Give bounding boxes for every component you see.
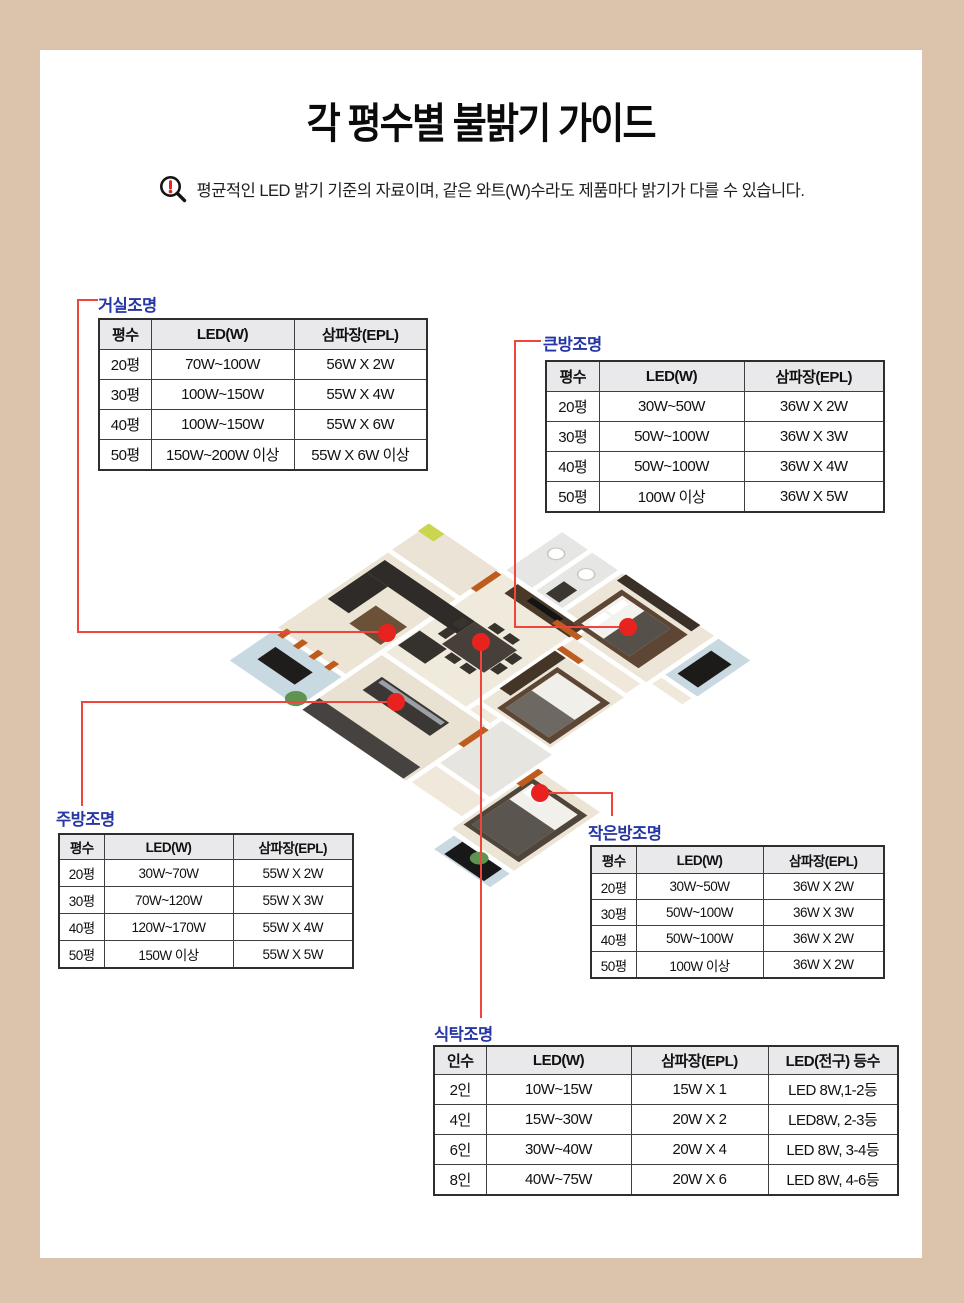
table-cell: 70W~120W (104, 887, 233, 914)
big-room-callout-line (514, 626, 628, 628)
label-kitchen-lighting: 주방조명 (56, 806, 115, 830)
table-row: 40평100W~150W55W X 6W (99, 410, 427, 440)
kitchen-callout-line (81, 701, 83, 806)
table-cell: LED 8W, 3-4등 (768, 1135, 898, 1165)
table-cell: 40평 (59, 914, 104, 941)
column-header: 삼파장(EPL) (763, 846, 884, 874)
small-room-callout-line (611, 792, 613, 816)
table-row: 40평50W~100W36W X 2W (591, 926, 884, 952)
column-header: LED(W) (486, 1046, 631, 1075)
kitchen-table: 평수LED(W)삼파장(EPL)20평30W~70W55W X 2W30평70W… (58, 833, 354, 969)
table-cell: 30W~50W (636, 874, 763, 900)
table-cell: 8인 (434, 1165, 486, 1196)
table-cell: 20평 (591, 874, 636, 900)
small-room-callout-line (540, 792, 613, 794)
header-row: 평수LED(W)삼파장(EPL) (546, 361, 884, 392)
table-cell: 50W~100W (636, 926, 763, 952)
header-row: 인수LED(W)삼파장(EPL)LED(전구) 등수 (434, 1046, 898, 1075)
table-row: 6인30W~40W20W X 4LED 8W, 3-4등 (434, 1135, 898, 1165)
table-cell: 4인 (434, 1105, 486, 1135)
table-cell: 100W~150W (151, 410, 294, 440)
table-cell: 50평 (591, 952, 636, 979)
table-cell: 50평 (59, 941, 104, 969)
table-row: 20평30W~70W55W X 2W (59, 860, 353, 887)
page-title: 각 평수별 불밝기 가이드 (307, 90, 655, 151)
column-header: 삼파장(EPL) (233, 834, 353, 860)
table-row: 8인40W~75W20W X 6LED 8W, 4-6등 (434, 1165, 898, 1196)
dining-callout-line (480, 642, 482, 1018)
table-cell: 40평 (546, 452, 599, 482)
table-row: 30평50W~100W36W X 3W (546, 422, 884, 452)
table-cell: 150W 이상 (104, 941, 233, 969)
table-cell: 100W 이상 (599, 482, 744, 513)
table-cell: 20W X 2 (631, 1105, 768, 1135)
label-dining-lighting: 식탁조명 (434, 1021, 493, 1045)
label-big-room-lighting: 큰방조명 (543, 331, 602, 355)
table-cell: 55W X 4W (233, 914, 353, 941)
table-cell: 30평 (591, 900, 636, 926)
small-room-marker (531, 784, 549, 802)
table-cell: 70W~100W (151, 350, 294, 380)
table-cell: 2인 (434, 1075, 486, 1105)
table-cell: 36W X 5W (744, 482, 884, 513)
table-cell: LED 8W,1-2등 (768, 1075, 898, 1105)
big-room-marker (619, 618, 637, 636)
table-cell: 20평 (59, 860, 104, 887)
column-header: 평수 (591, 846, 636, 874)
big-room-callout-line (514, 340, 516, 628)
table-row: 30평100W~150W55W X 4W (99, 380, 427, 410)
column-header: LED(W) (599, 361, 744, 392)
table-cell: 36W X 4W (744, 452, 884, 482)
kitchen-callout-line (81, 701, 396, 703)
label-living-room-lighting: 거실조명 (98, 292, 157, 316)
column-header: 평수 (59, 834, 104, 860)
table-cell: 30W~40W (486, 1135, 631, 1165)
table-cell: 55W X 6W 이상 (294, 440, 427, 471)
living-room-marker (378, 624, 396, 642)
table-cell: 55W X 2W (233, 860, 353, 887)
table-cell: 20W X 4 (631, 1135, 768, 1165)
table-cell: 100W~150W (151, 380, 294, 410)
small-room-table: 평수LED(W)삼파장(EPL)20평30W~50W36W X 2W30평50W… (590, 845, 885, 979)
table-cell: 40W~75W (486, 1165, 631, 1196)
poster-page: 각 평수별 불밝기 가이드 평균적인 LED 밝기 기준의 자료이며, 같은 와… (0, 0, 964, 1303)
table-cell: 20평 (546, 392, 599, 422)
table-cell: 36W X 2W (744, 392, 884, 422)
column-header: 평수 (99, 319, 151, 350)
table-cell: LED8W, 2-3등 (768, 1105, 898, 1135)
table-cell: 6인 (434, 1135, 486, 1165)
table-cell: 50평 (99, 440, 151, 471)
living-callout-line (77, 631, 387, 633)
living-callout-line (77, 299, 98, 301)
table-row: 50평150W 이상55W X 5W (59, 941, 353, 969)
notice-row: 평균적인 LED 밝기 기준의 자료이며, 같은 와트(W)수라도 제품마다 밝… (40, 174, 922, 204)
column-header: 삼파장(EPL) (631, 1046, 768, 1075)
table-row: 40평50W~100W36W X 4W (546, 452, 884, 482)
table-cell: 120W~170W (104, 914, 233, 941)
table-row: 2인10W~15W15W X 1LED 8W,1-2등 (434, 1075, 898, 1105)
dining-table-table: 인수LED(W)삼파장(EPL)LED(전구) 등수2인10W~15W15W X… (433, 1045, 899, 1196)
table-cell: 56W X 2W (294, 350, 427, 380)
notice-text: 평균적인 LED 밝기 기준의 자료이며, 같은 와트(W)수라도 제품마다 밝… (197, 177, 805, 201)
table-cell: 40평 (591, 926, 636, 952)
column-header: LED(W) (151, 319, 294, 350)
column-header: LED(W) (636, 846, 763, 874)
table-cell: 10W~15W (486, 1075, 631, 1105)
table-cell: 55W X 5W (233, 941, 353, 969)
living-callout-line (77, 299, 79, 633)
table-cell: 30W~70W (104, 860, 233, 887)
table-cell: 30평 (59, 887, 104, 914)
header-row: 평수LED(W)삼파장(EPL) (591, 846, 884, 874)
table-cell: 150W~200W 이상 (151, 440, 294, 471)
table-cell: 36W X 3W (744, 422, 884, 452)
table-cell: 50W~100W (599, 422, 744, 452)
kitchen-marker (387, 693, 405, 711)
table-row: 40평120W~170W55W X 4W (59, 914, 353, 941)
living-room-table: 평수LED(W)삼파장(EPL)20평70W~100W56W X 2W30평10… (98, 318, 428, 471)
table-cell: 36W X 2W (763, 926, 884, 952)
table-cell: 55W X 3W (233, 887, 353, 914)
table-row: 30평50W~100W36W X 3W (591, 900, 884, 926)
table-row: 50평100W 이상36W X 2W (591, 952, 884, 979)
header-row: 평수LED(W)삼파장(EPL) (99, 319, 427, 350)
column-header: LED(전구) 등수 (768, 1046, 898, 1075)
column-header: 인수 (434, 1046, 486, 1075)
column-header: 삼파장(EPL) (744, 361, 884, 392)
big-room-callout-line (514, 340, 541, 342)
table-row: 30평70W~120W55W X 3W (59, 887, 353, 914)
table-cell: 50평 (546, 482, 599, 513)
table-cell: 36W X 2W (763, 952, 884, 979)
table-cell: 50W~100W (599, 452, 744, 482)
table-cell: 20W X 6 (631, 1165, 768, 1196)
magnifier-exclamation-icon (158, 174, 188, 204)
label-small-room-lighting: 작은방조명 (588, 820, 661, 844)
table-cell: 30평 (546, 422, 599, 452)
table-row: 50평100W 이상36W X 5W (546, 482, 884, 513)
table-cell: 30W~50W (599, 392, 744, 422)
big-room-table: 평수LED(W)삼파장(EPL)20평30W~50W36W X 2W30평50W… (545, 360, 885, 513)
table-cell: 50W~100W (636, 900, 763, 926)
table-cell: 55W X 6W (294, 410, 427, 440)
column-header: 삼파장(EPL) (294, 319, 427, 350)
table-cell: 20평 (99, 350, 151, 380)
table-row: 4인15W~30W20W X 2LED8W, 2-3등 (434, 1105, 898, 1135)
table-cell: 36W X 2W (763, 874, 884, 900)
table-cell: 30평 (99, 380, 151, 410)
table-cell: 55W X 4W (294, 380, 427, 410)
header-row: 평수LED(W)삼파장(EPL) (59, 834, 353, 860)
table-row: 20평30W~50W36W X 2W (546, 392, 884, 422)
column-header: 평수 (546, 361, 599, 392)
dining-marker (472, 633, 490, 651)
table-row: 50평150W~200W 이상55W X 6W 이상 (99, 440, 427, 471)
table-cell: 15W~30W (486, 1105, 631, 1135)
table-row: 20평30W~50W36W X 2W (591, 874, 884, 900)
table-cell: 15W X 1 (631, 1075, 768, 1105)
column-header: LED(W) (104, 834, 233, 860)
table-cell: LED 8W, 4-6등 (768, 1165, 898, 1196)
table-cell: 40평 (99, 410, 151, 440)
table-cell: 100W 이상 (636, 952, 763, 979)
table-row: 20평70W~100W56W X 2W (99, 350, 427, 380)
table-cell: 36W X 3W (763, 900, 884, 926)
